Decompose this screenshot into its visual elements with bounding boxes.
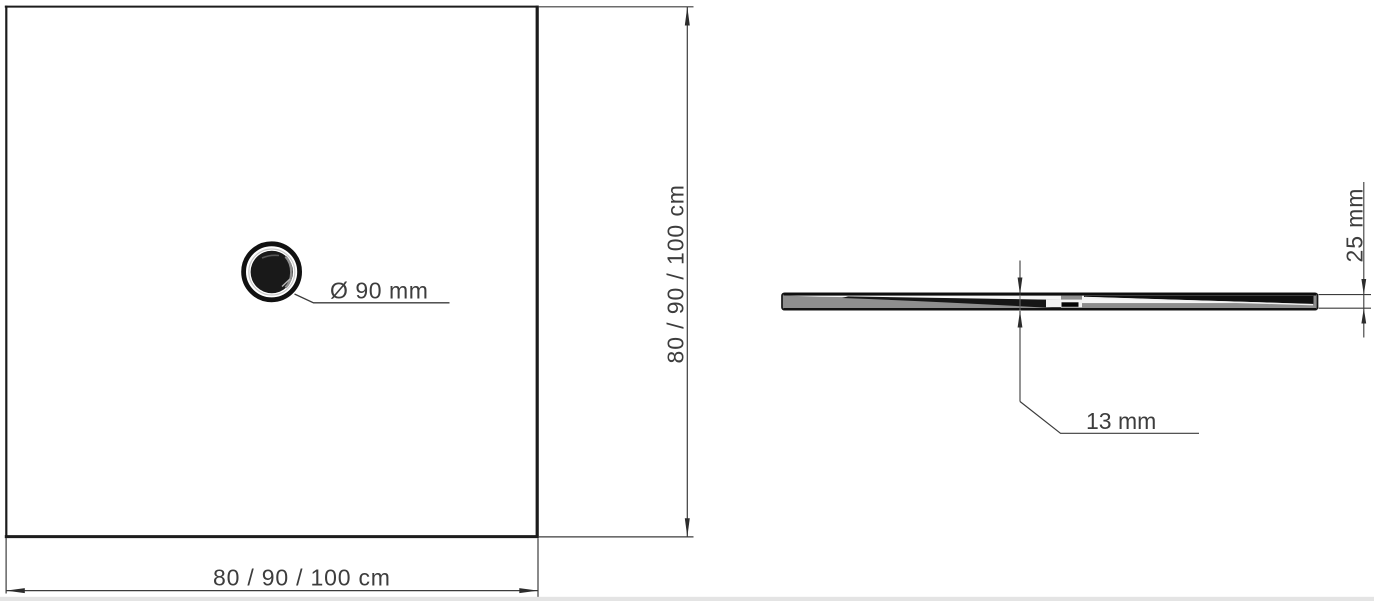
svg-text:25 mm: 25 mm — [1342, 188, 1368, 263]
svg-text:Ø 90 mm: Ø 90 mm — [330, 278, 428, 304]
svg-text:13 mm: 13 mm — [1086, 408, 1156, 434]
svg-text:80 / 90 / 100 cm: 80 / 90 / 100 cm — [663, 184, 689, 363]
svg-text:80 / 90 / 100 cm: 80 / 90 / 100 cm — [213, 565, 391, 591]
